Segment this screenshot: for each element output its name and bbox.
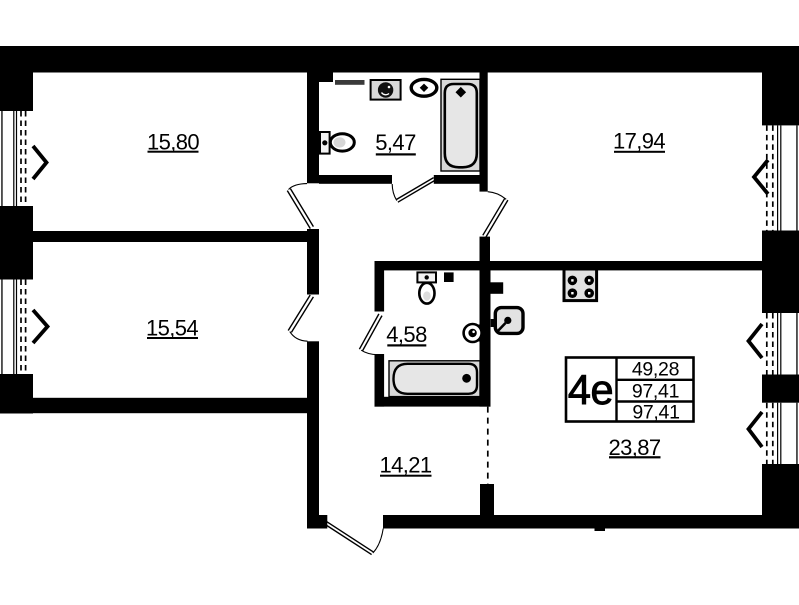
svg-text:15,54: 15,54 [146, 316, 198, 341]
svg-text:49,28: 49,28 [632, 359, 679, 381]
svg-text:97,41: 97,41 [632, 381, 679, 403]
svg-text:14,21: 14,21 [379, 453, 431, 478]
svg-text:97,41: 97,41 [632, 401, 679, 423]
svg-text:17,94: 17,94 [613, 129, 665, 154]
svg-text:4,58: 4,58 [386, 322, 427, 347]
svg-text:5,47: 5,47 [375, 130, 416, 155]
svg-text:4е: 4е [568, 366, 613, 413]
